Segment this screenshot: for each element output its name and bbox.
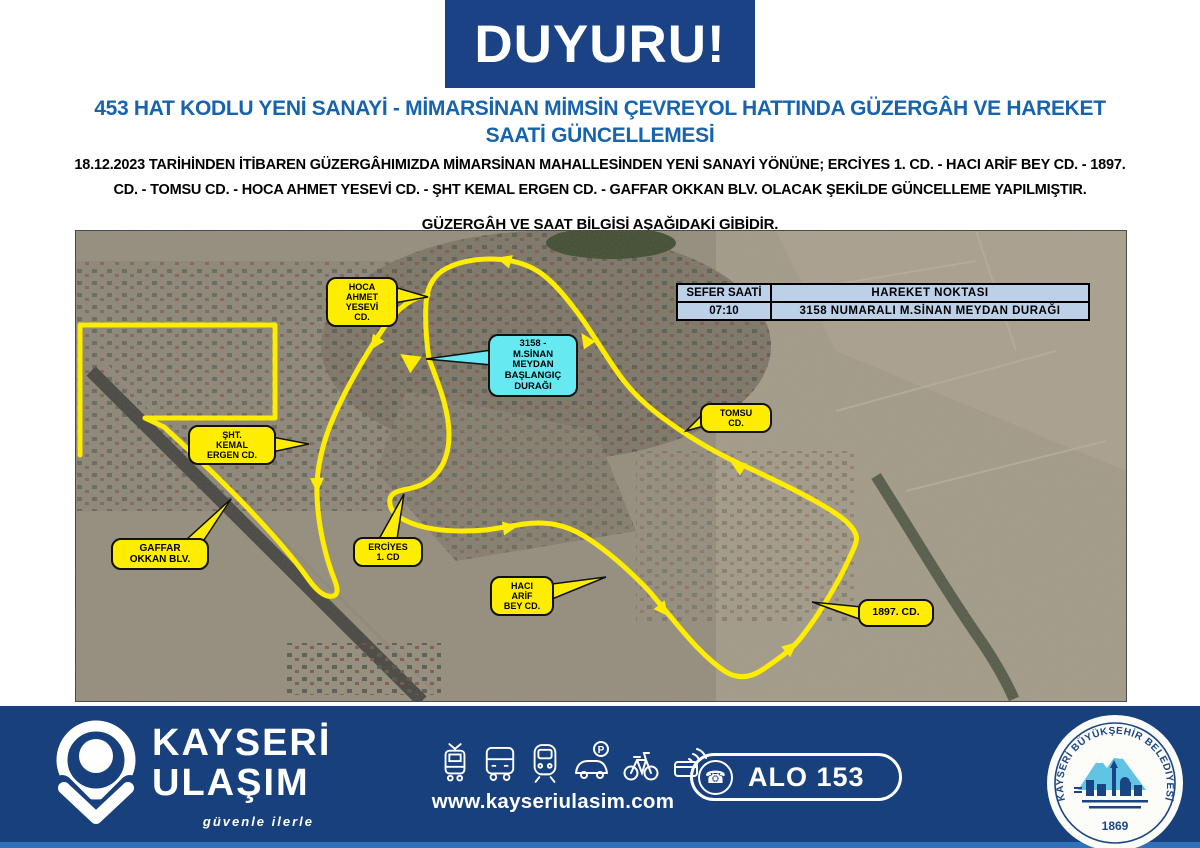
map-label-hoca-ahmet-yesevi: HOCA AHMET YESEVİ CD.: [326, 277, 398, 327]
map-label-erciyes: ERCİYES 1. CD: [353, 537, 423, 567]
phone-icon: ☎: [705, 769, 726, 786]
parking-letter: P: [598, 745, 605, 756]
departure-table-row: 07:10 3158 NUMARALI M.SİNAN MEYDAN DURAĞ…: [678, 301, 1088, 319]
map-label-haci-arif-bey: HACI ARİF BEY CD.: [490, 576, 554, 616]
page-title-line1: 453 HAT KODLU YENİ SANAYİ - MİMARSİNAN M…: [40, 95, 1160, 122]
alo-153-badge: ☎ ALO 153: [690, 753, 902, 801]
intro-text: 18.12.2023 TARİHİNDEN İTİBAREN GÜZERGÂHI…: [40, 153, 1160, 238]
departure-time: 07:10: [678, 303, 772, 319]
route-map: HOCA AHMET YESEVİ CD. 3158 - M.SİNAN MEY…: [75, 230, 1127, 702]
website-url: www.kayseriulasim.com: [428, 790, 678, 814]
announcement-poster: DUYURU! 453 HAT KODLU YENİ SANAYİ - MİMA…: [0, 0, 1200, 848]
page-title-line2: SAATİ GÜNCELLEMESİ: [40, 122, 1160, 149]
col-hareket-noktasi: HAREKET NOKTASI: [772, 285, 1088, 301]
tram-icon: [438, 740, 472, 786]
transport-icons: P: [438, 740, 711, 786]
map-label-sht-kemal-ergen: ŞHT. KEMAL ERGEN CD.: [188, 425, 276, 465]
kayseri-ulasim-pin-icon: [44, 716, 148, 834]
map-label-start-stop: 3158 - M.SİNAN MEYDAN BAŞLANGIÇ DURAĞI: [488, 334, 578, 397]
footer-bottom-strip: [0, 842, 1200, 848]
brand-wordmark: KAYSERİ ULAŞIM: [152, 724, 331, 804]
car-parking-icon: P: [573, 740, 611, 786]
brand-line2: ULAŞIM: [152, 764, 331, 804]
intro-line1: 18.12.2023 TARİHİNDEN İTİBAREN GÜZERGÂHI…: [40, 153, 1160, 178]
page-title: 453 HAT KODLU YENİ SANAYİ - MİMARSİNAN M…: [40, 95, 1160, 150]
map-label-1897: 1897. CD.: [858, 599, 934, 627]
departure-point: 3158 NUMARALI M.SİNAN MEYDAN DURAĞI: [772, 303, 1088, 319]
alo-153-label: ALO 153: [748, 762, 865, 793]
map-label-tomsu: TOMSU CD.: [700, 403, 772, 433]
seal-year: 1869: [1102, 819, 1129, 833]
metro-icon: [528, 740, 562, 786]
banner: DUYURU!: [445, 0, 755, 88]
departure-table-header: SEFER SAATİ HAREKET NOKTASI: [678, 285, 1088, 301]
map-label-gaffar-okkan: GAFFAR OKKAN BLV.: [111, 538, 209, 570]
banner-title: DUYURU!: [474, 14, 725, 75]
col-sefer-saati: SEFER SAATİ: [678, 285, 772, 301]
departure-table: SEFER SAATİ HAREKET NOKTASI 07:10 3158 N…: [676, 283, 1090, 321]
bus-icon: [483, 740, 517, 786]
phone-circle: ☎: [698, 760, 733, 795]
bicycle-icon: [622, 740, 660, 786]
intro-line2: CD. - TOMSU CD. - HOCA AHMET YESEVİ CD. …: [40, 178, 1160, 203]
brand-line1: KAYSERİ: [152, 724, 331, 764]
brand-slogan: güvenle ilerle: [150, 814, 314, 829]
municipality-seal: KAYSERİ BÜYÜKŞEHİR BELEDİYESİ 1869: [1044, 712, 1186, 848]
